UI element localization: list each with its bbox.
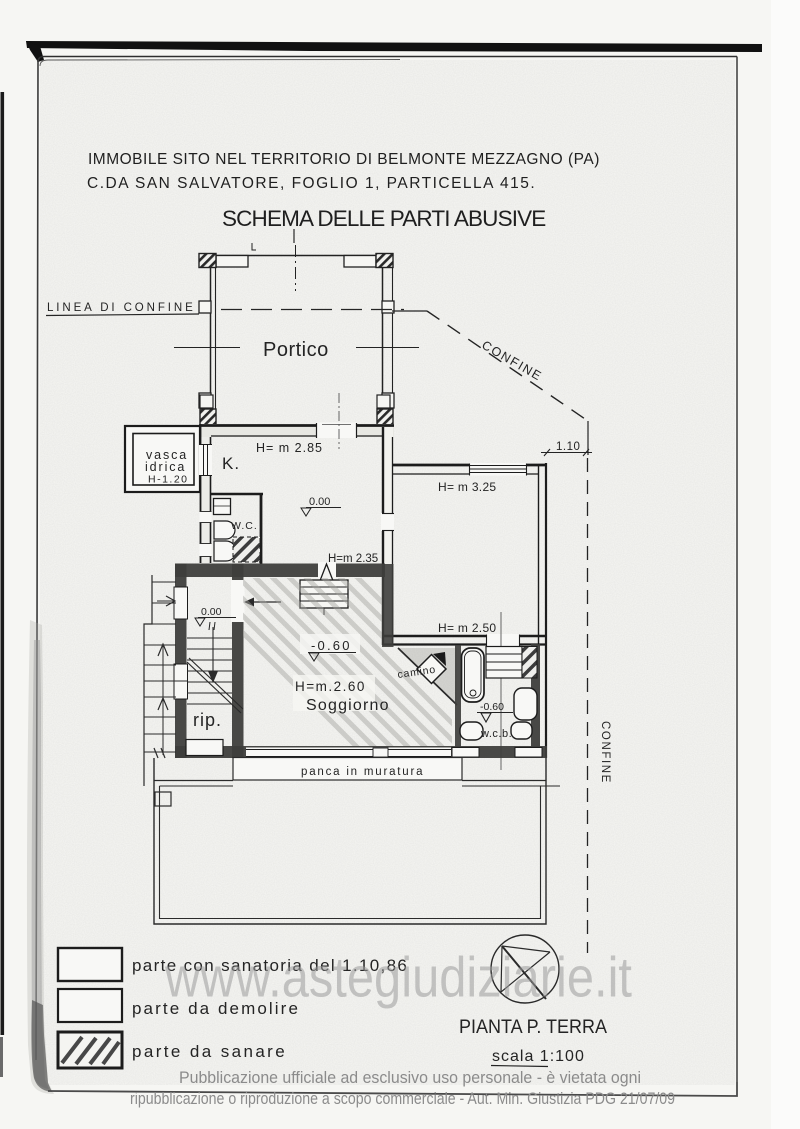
svg-text:PIANTA P. TERRA: PIANTA P. TERRA	[459, 1017, 607, 1038]
svg-text:SCHEMA DELLE PARTI ABUSIVE: SCHEMA DELLE PARTI ABUSIVE	[222, 206, 546, 231]
svg-text:ripubblicazione o riproduzione: ripubblicazione o riproduzione a scopo c…	[130, 1090, 675, 1108]
svg-text:1.10: 1.10	[556, 441, 580, 453]
svg-text:Portico: Portico	[263, 339, 329, 361]
svg-text:H-1.20: H-1.20	[148, 474, 189, 486]
svg-text:idrica: idrica	[145, 460, 186, 474]
svg-text:www.astegiudiziarie.it: www.astegiudiziarie.it	[164, 946, 632, 1010]
svg-text:C.DA SAN SALVATORE, FOGLIO 1,: C.DA SAN SALVATORE, FOGLIO 1, PARTICELLA…	[87, 175, 536, 192]
svg-text:panca in muratura: panca in muratura	[301, 766, 424, 778]
svg-text:0.00: 0.00	[201, 606, 222, 618]
svg-text:IMMOBILE SITO NEL TERRITORIO D: IMMOBILE SITO NEL TERRITORIO DI BELMONTE…	[88, 151, 600, 168]
svg-text:CONFINE: CONFINE	[599, 721, 611, 784]
svg-text:K.: K.	[222, 454, 240, 473]
svg-text:-0.60: -0.60	[311, 638, 352, 653]
svg-text:W.C.: W.C.	[231, 520, 258, 532]
svg-text:w.c.b.: w.c.b.	[480, 728, 512, 740]
svg-text:Soggiorno: Soggiorno	[306, 697, 390, 714]
svg-text:H=m.2.60: H=m.2.60	[295, 679, 366, 694]
svg-text:-0.60: -0.60	[480, 701, 504, 713]
svg-text:Pubblicazione ufficiale ad esc: Pubblicazione ufficiale ad esclusivo uso…	[179, 1069, 641, 1087]
svg-text:scala 1:100: scala 1:100	[492, 1048, 585, 1065]
svg-text:0.00: 0.00	[309, 496, 330, 508]
svg-text:H= m 3.25: H= m 3.25	[438, 480, 496, 494]
svg-text:H=m 2.35: H=m 2.35	[328, 553, 378, 565]
svg-text:rip.: rip.	[193, 710, 222, 730]
svg-text:LINEA DI CONFINE: LINEA DI CONFINE	[47, 302, 196, 314]
svg-text:H= m 2.85: H= m 2.85	[256, 441, 323, 455]
svg-text:parte da sanare: parte da sanare	[132, 1042, 287, 1061]
svg-text:H= m 2.50: H= m 2.50	[438, 621, 496, 635]
